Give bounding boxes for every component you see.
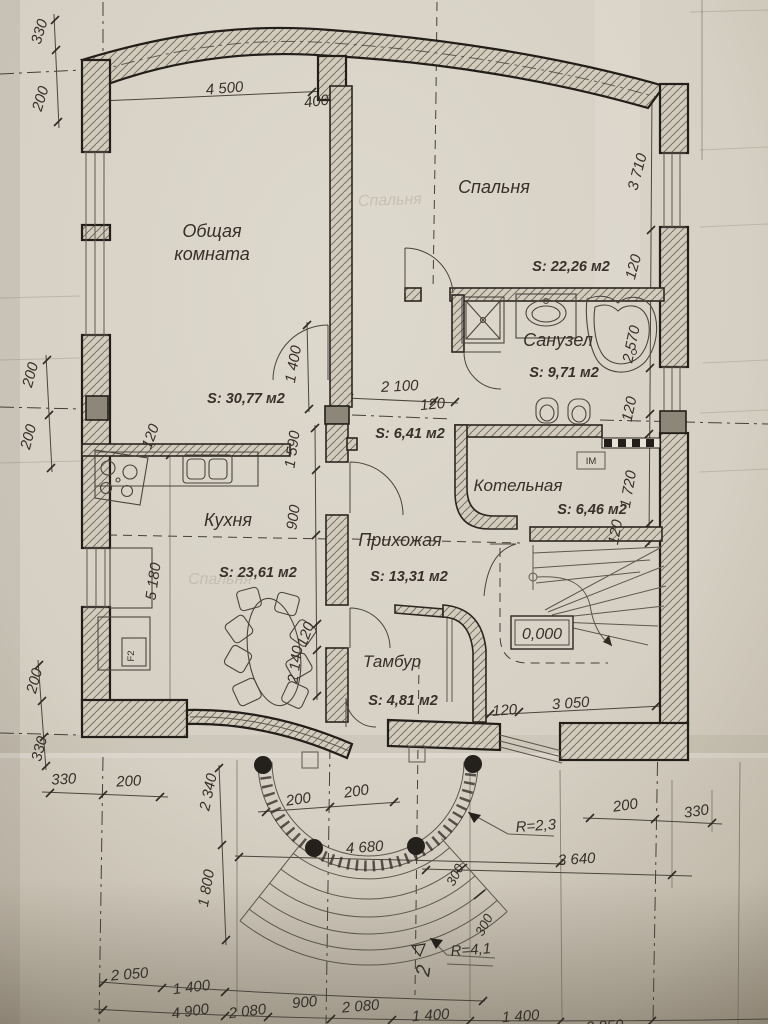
wall-living-corridor <box>330 86 352 407</box>
area-hallway: S: 13,31 м2 <box>370 569 448 585</box>
dim: 900 <box>291 993 318 1012</box>
f2-label: F2 <box>126 650 137 661</box>
room-label-bedroom: Спальня <box>458 177 530 197</box>
dim: 4 500 <box>205 78 245 98</box>
room-label-vestibule: Тамбур <box>363 652 421 671</box>
wall-living-kitchen <box>82 444 290 456</box>
floor-plan-photo: Спальня Спальня Общая комната S: 30,77 м… <box>0 0 768 1024</box>
dim: 400 <box>303 91 331 111</box>
area-vestibule: S: 4,81 м2 <box>368 693 438 709</box>
lintel-striped <box>602 438 660 448</box>
dim: 120 <box>419 395 446 414</box>
paper-background <box>0 0 768 1024</box>
area-corridor: S: 6,41 м2 <box>375 426 445 442</box>
area-kitchen: S: 23,61 м2 <box>219 565 297 581</box>
dim: 900 <box>283 503 303 531</box>
column-left <box>86 396 108 420</box>
room-label-living-1: Общая <box>182 221 242 241</box>
dim: 330 <box>51 770 78 788</box>
dim: 3 050 <box>551 694 590 714</box>
dim: 120 <box>492 701 519 720</box>
area-bathroom: S: 9,71 м2 <box>529 365 599 381</box>
area-living: S: 30,77 м2 <box>207 391 285 407</box>
dim: 2 100 <box>380 377 420 396</box>
area-bedroom: S: 22,26 м2 <box>532 259 610 275</box>
column-right <box>660 411 686 433</box>
ghost-label: Спальня <box>358 191 423 210</box>
room-label-boiler: Котельная <box>474 476 563 495</box>
radius-porch-label: R=2,3 <box>515 816 557 836</box>
room-label-hallway: Прихожая <box>358 530 442 550</box>
room-label-living-2: комната <box>174 244 250 264</box>
radius-steps-label: R=4,1 <box>450 940 492 960</box>
dim: 1 400 <box>411 1006 450 1024</box>
dim: 330 <box>683 801 711 821</box>
wall-stair <box>530 527 662 541</box>
dim: 3 640 <box>557 850 596 870</box>
room-label-kitchen: Кухня <box>204 510 252 530</box>
wall-bath-boiler <box>455 425 602 437</box>
im-label: IM <box>586 456 597 467</box>
dim: 2 050 <box>109 964 150 984</box>
level-mark-label: 0,000 <box>522 626 562 643</box>
column-center <box>325 406 349 424</box>
floor-plan-drawing: Спальня Спальня Общая комната S: 30,77 м… <box>0 0 768 1024</box>
room-label-bathroom: Санузел <box>523 330 593 350</box>
dim: 2 080 <box>340 996 381 1016</box>
dim: 200 <box>115 772 143 790</box>
dim: 1 400 <box>501 1007 540 1024</box>
dim: 4 680 <box>345 838 384 858</box>
